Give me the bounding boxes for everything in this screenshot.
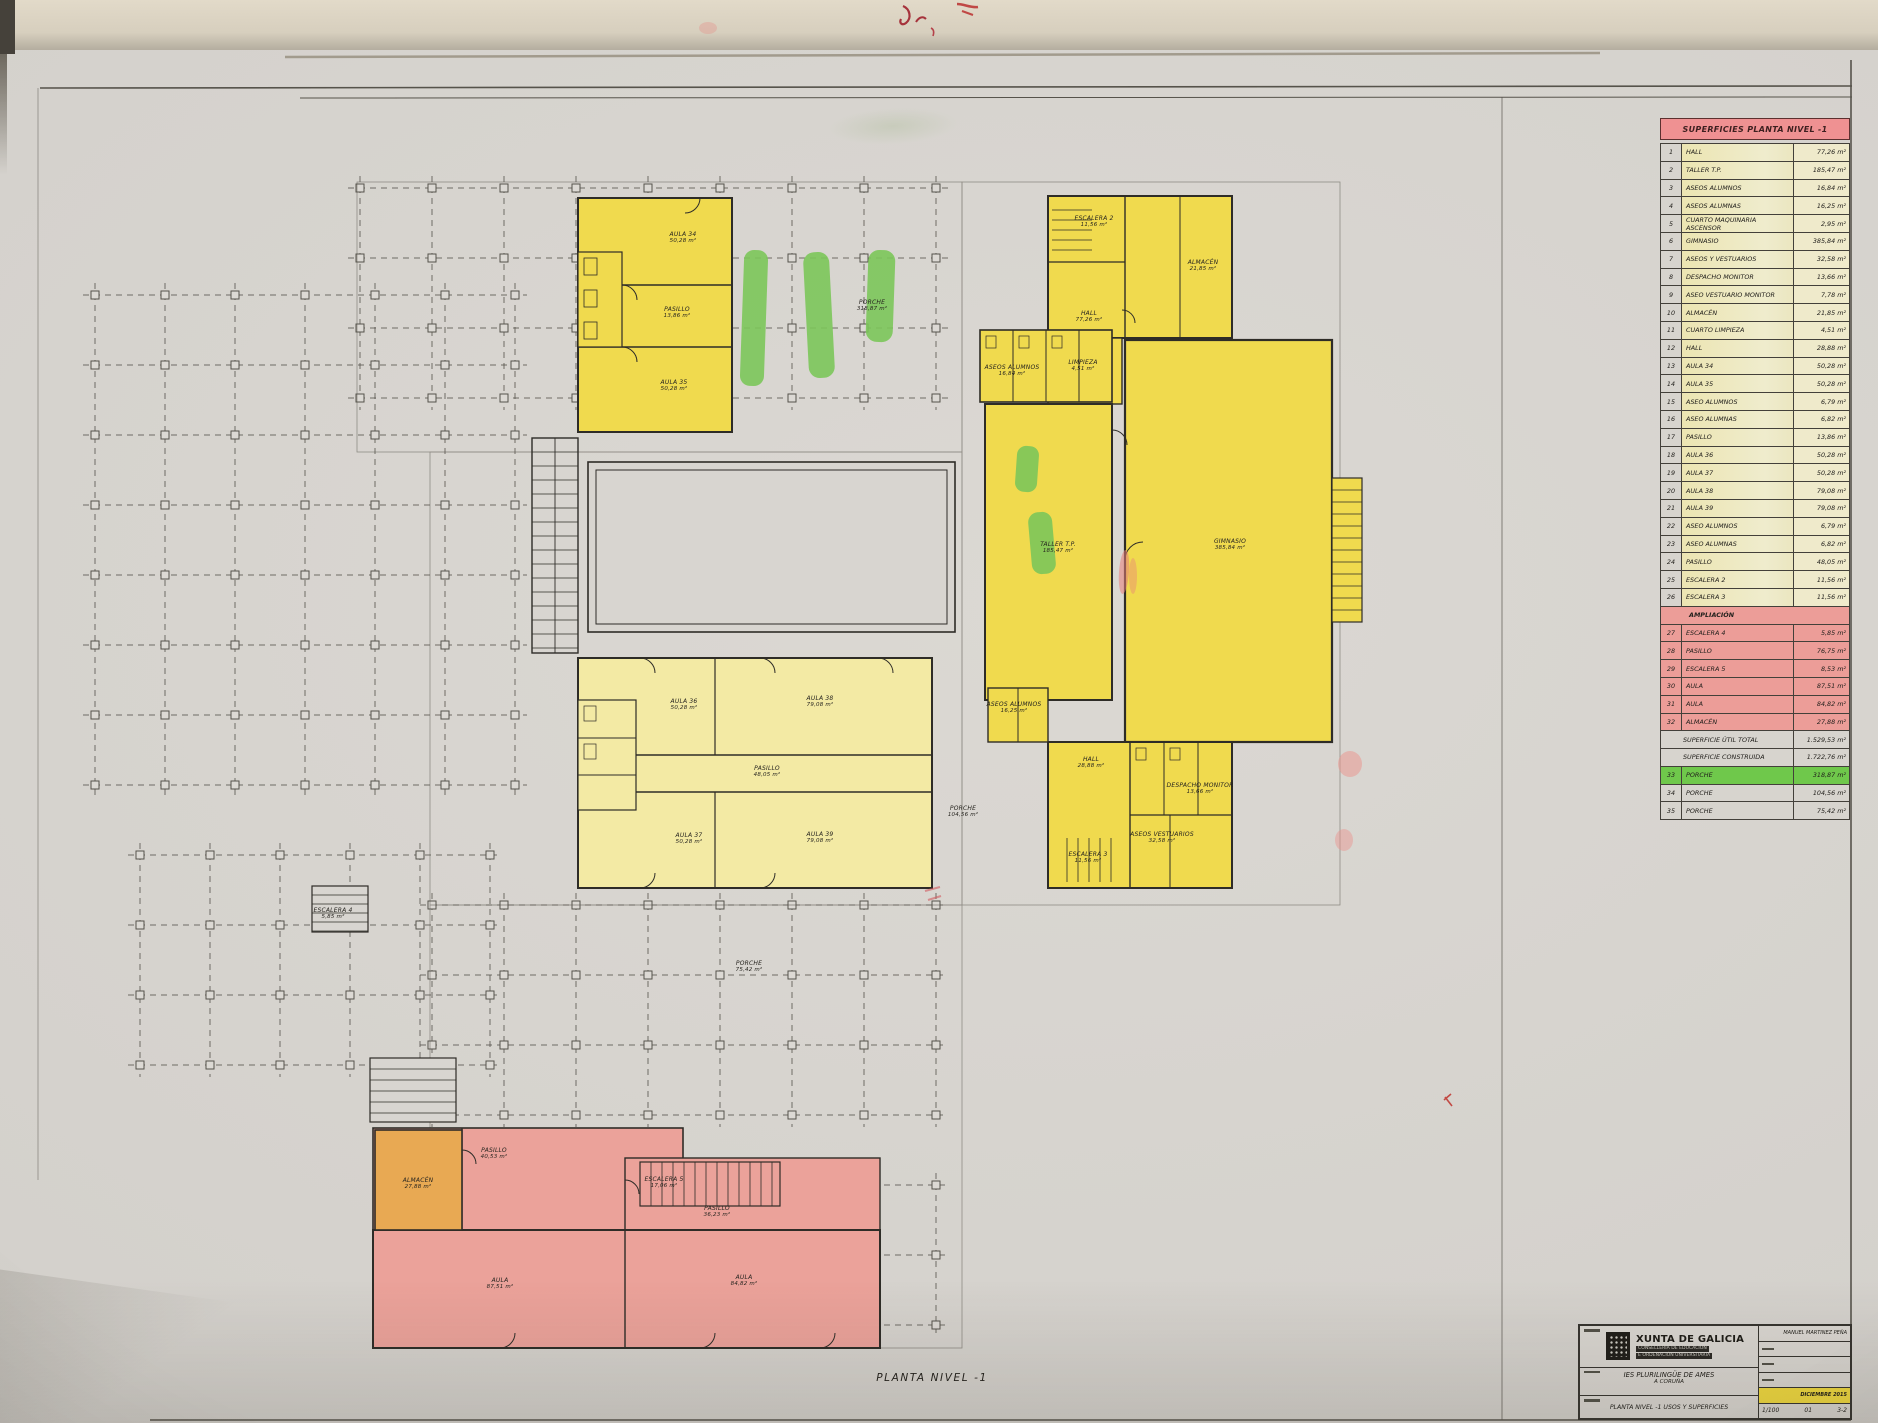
legend-row: 22ASEO ALUMNOS6,79 m² bbox=[1661, 518, 1849, 536]
date-value: DICIEMBRE 2015 bbox=[1800, 1392, 1847, 1398]
organization-cell: XUNTA DE GALICIA CONSELLERÍA DE EDUCACIÓ… bbox=[1580, 1326, 1758, 1368]
legend-row: 15ASEO ALUMNOS6,79 m² bbox=[1661, 393, 1849, 411]
author-name: MANUEL MARTINEZ PEÑA bbox=[1783, 1330, 1847, 1336]
field-row bbox=[1759, 1357, 1850, 1373]
author-row: MANUEL MARTINEZ PEÑA bbox=[1759, 1326, 1850, 1342]
photo-edge-shadow bbox=[0, 54, 7, 174]
legend-row: 1HALL77,26 m² bbox=[1661, 144, 1849, 162]
legend-table: 1HALL77,26 m²2TALLER T.P.185,47 m²3ASEOS… bbox=[1660, 143, 1850, 820]
sheet-ref: 3-2 bbox=[1837, 1407, 1847, 1414]
legend-row: 14AULA 3550,28 m² bbox=[1661, 375, 1849, 393]
room-label: AULA87,51 m² bbox=[487, 1277, 514, 1291]
photo-corner-shadow bbox=[0, 0, 15, 54]
field-row bbox=[1759, 1342, 1850, 1358]
organization-sub2: E ORDENACIÓN UNIVERSITARIA bbox=[1636, 1353, 1712, 1359]
room-label: GIMNASIO385,84 m² bbox=[1214, 538, 1246, 552]
room-label: PORCHE75,42 m² bbox=[736, 960, 763, 974]
legend-row: 9ASEO VESTUARIO MONITOR7,78 m² bbox=[1661, 286, 1849, 304]
room-label: AULA 3750,28 m² bbox=[676, 832, 703, 846]
legend-row: 33PORCHE318,87 m² bbox=[1661, 767, 1849, 785]
room-label: ESCALERA 45,85 m² bbox=[313, 907, 352, 921]
room-label: AULA 3979,08 m² bbox=[807, 831, 834, 845]
legend-row: 8DESPACHO MONITOR13,66 m² bbox=[1661, 269, 1849, 287]
legend-row: 13AULA 3450,28 m² bbox=[1661, 358, 1849, 376]
room-label: AULA84,82 m² bbox=[731, 1274, 758, 1288]
legend-row: 24PASILLO48,05 m² bbox=[1661, 553, 1849, 571]
room-label: PASILLO36,23 m² bbox=[704, 1205, 731, 1219]
xunta-logo-icon bbox=[1606, 1332, 1630, 1360]
organization-name: XUNTA DE GALICIA bbox=[1636, 1334, 1744, 1345]
title-block: XUNTA DE GALICIA CONSELLERÍA DE EDUCACIÓ… bbox=[1578, 1324, 1852, 1420]
room-label: PASILLO48,05 m² bbox=[754, 765, 781, 779]
room-label: ESCALERA 211,56 m² bbox=[1074, 215, 1113, 229]
room-label: PORCHE104,56 m² bbox=[948, 805, 978, 819]
room-label: PASILLO13,86 m² bbox=[664, 306, 691, 320]
room-label: ASEOS ALUMNOS16,84 m² bbox=[985, 364, 1040, 378]
plan-caption: PLANTA NIVEL -1 bbox=[832, 1372, 1032, 1384]
room-label: ALMACÉN27,88 m² bbox=[403, 1177, 434, 1191]
legend-total-row: SUPERFICIE ÚTIL TOTAL1.529,53 m² bbox=[1661, 731, 1849, 749]
room-label: AULA 3879,08 m² bbox=[807, 695, 834, 709]
scale-value: 1/100 bbox=[1762, 1407, 1779, 1414]
room-label: PASILLO40,53 m² bbox=[481, 1147, 508, 1161]
legend-row: 18AULA 3650,28 m² bbox=[1661, 447, 1849, 465]
legend-row: 29ESCALERA 58,53 m² bbox=[1661, 660, 1849, 678]
organization-sub1: CONSELLERÍA DE EDUCACIÓN bbox=[1636, 1346, 1709, 1352]
title-block-right: MANUEL MARTINEZ PEÑA DICIEMBRE 2015 1/10… bbox=[1759, 1326, 1850, 1418]
legend-row: 30AULA87,51 m² bbox=[1661, 678, 1849, 696]
room-label: ALMACÉN21,85 m² bbox=[1188, 259, 1219, 273]
legend-row: 27ESCALERA 45,85 m² bbox=[1661, 625, 1849, 643]
legend-section-row: AMPLIACIÓN bbox=[1661, 607, 1849, 625]
legend-row: 6GIMNASIO385,84 m² bbox=[1661, 233, 1849, 251]
sheet-number: 01 bbox=[1804, 1407, 1812, 1414]
room-label: AULA 3650,28 m² bbox=[671, 698, 698, 712]
legend-row: 3ASEOS ALUMNOS16,84 m² bbox=[1661, 180, 1849, 198]
room-label: AULA 3550,28 m² bbox=[661, 379, 688, 393]
legend-row: 28PASILLO76,75 m² bbox=[1661, 642, 1849, 660]
project-name: IES PLURILINGÜE DE AMES bbox=[1580, 1371, 1758, 1379]
legend-row: 19AULA 3750,28 m² bbox=[1661, 464, 1849, 482]
room-label: AULA 3450,28 m² bbox=[670, 231, 697, 245]
room-label: HALL77,26 m² bbox=[1076, 310, 1103, 324]
legend-row: 25ESCALERA 211,56 m² bbox=[1661, 571, 1849, 589]
project-cell: IES PLURILINGÜE DE AMES A CORUÑA bbox=[1580, 1368, 1758, 1396]
surface-legend: SUPERFICIES PLANTA NIVEL -1 1HALL77,26 m… bbox=[1660, 118, 1850, 820]
legend-row: 21AULA 3979,08 m² bbox=[1661, 500, 1849, 518]
room-label: HALL28,88 m² bbox=[1078, 756, 1105, 770]
legend-row: 12HALL28,88 m² bbox=[1661, 340, 1849, 358]
legend-row: 31AULA84,82 m² bbox=[1661, 696, 1849, 714]
legend-row: 7ASEOS Y VESTUARIOS32,58 m² bbox=[1661, 251, 1849, 269]
room-label: TALLER T.P.185,47 m² bbox=[1040, 541, 1076, 555]
legend-total-row: SUPERFICIE CONSTRUIDA1.722,76 m² bbox=[1661, 749, 1849, 767]
date-row: DICIEMBRE 2015 bbox=[1759, 1388, 1850, 1404]
sheet-title: PLANTA NIVEL -1 USOS Y SUPERFICIES bbox=[1610, 1404, 1728, 1411]
room-labels: AULA 3450,28 m²PASILLO13,86 m²AULA 3550,… bbox=[0, 0, 1878, 1423]
legend-row: 20AULA 3879,08 m² bbox=[1661, 482, 1849, 500]
room-label: ESCALERA 517,06 m² bbox=[644, 1176, 683, 1190]
legend-title: SUPERFICIES PLANTA NIVEL -1 bbox=[1660, 118, 1850, 140]
room-label: LIMPIEZA4,51 m² bbox=[1068, 359, 1097, 373]
legend-row: 2TALLER T.P.185,47 m² bbox=[1661, 162, 1849, 180]
sheet-title-cell: PLANTA NIVEL -1 USOS Y SUPERFICIES bbox=[1580, 1396, 1758, 1418]
room-label: ASEOS VESTUARIOS32,58 m² bbox=[1130, 831, 1194, 845]
legend-row: 35PORCHE75,42 m² bbox=[1661, 802, 1849, 820]
legend-row: 23ASEO ALUMNAS6,82 m² bbox=[1661, 536, 1849, 554]
title-block-left: XUNTA DE GALICIA CONSELLERÍA DE EDUCACIÓ… bbox=[1580, 1326, 1759, 1418]
legend-row: 26ESCALERA 311,56 m² bbox=[1661, 589, 1849, 607]
legend-row: 11CUARTO LIMPIEZA4,51 m² bbox=[1661, 322, 1849, 340]
field-row bbox=[1759, 1373, 1850, 1389]
scale-row: 1/100 01 3-2 bbox=[1759, 1404, 1850, 1419]
legend-row: 4ASEOS ALUMNAS16,25 m² bbox=[1661, 197, 1849, 215]
legend-row: 10ALMACÉN21,85 m² bbox=[1661, 304, 1849, 322]
legend-row: 34PORCHE104,56 m² bbox=[1661, 785, 1849, 803]
legend-row: 32ALMACÉN27,88 m² bbox=[1661, 714, 1849, 732]
legend-row: 17PASILLO13,86 m² bbox=[1661, 429, 1849, 447]
room-label: ASEOS ALUMNOS16,25 m² bbox=[987, 701, 1042, 715]
legend-row: 5CUARTO MAQUINARIA ASCENSOR2,95 m² bbox=[1661, 215, 1849, 233]
room-label: ESCALERA 311,56 m² bbox=[1068, 851, 1107, 865]
room-label: DESPACHO MONITOR13,66 m² bbox=[1167, 782, 1234, 796]
project-location: A CORUÑA bbox=[1580, 1379, 1758, 1385]
floor-plan-photo: AULA 3450,28 m²PASILLO13,86 m²AULA 3550,… bbox=[0, 0, 1878, 1423]
room-label: PORCHE318,87 m² bbox=[857, 299, 887, 313]
legend-row: 16ASEO ALUMNAS6,82 m² bbox=[1661, 411, 1849, 429]
